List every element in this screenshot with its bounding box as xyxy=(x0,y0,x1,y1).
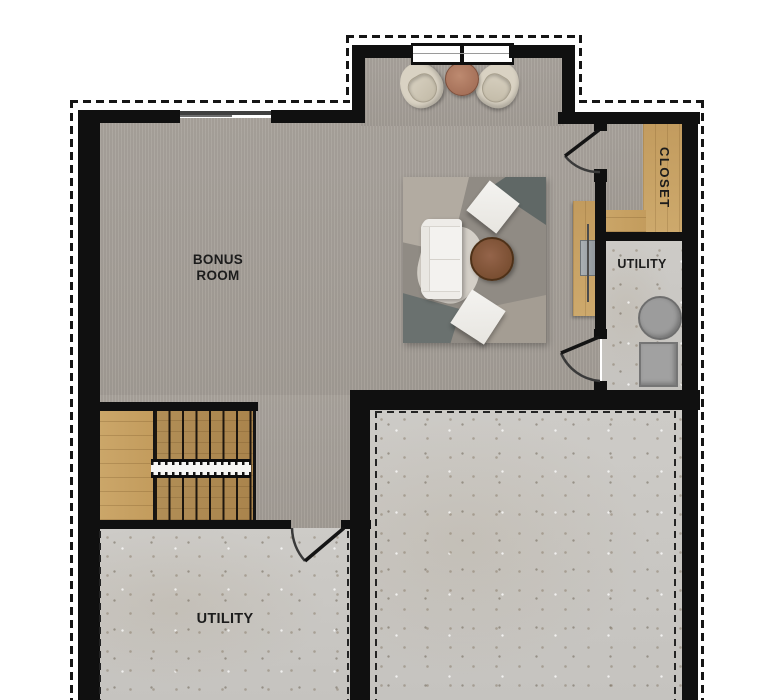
water-heater xyxy=(638,296,682,340)
bonus-room-label: BONUS ROOM xyxy=(160,252,276,284)
window-sill-line xyxy=(180,115,232,117)
closet-floor xyxy=(600,118,648,214)
wall-top-left-b xyxy=(271,110,354,123)
stair-railing xyxy=(151,459,251,478)
wall-mid-vertical xyxy=(350,390,370,700)
desk-accessory-line xyxy=(587,224,589,302)
double-window xyxy=(411,43,514,65)
sofa-cushion-seam xyxy=(430,259,460,260)
closet-door-post-top xyxy=(594,118,607,131)
sofa xyxy=(421,219,462,299)
unfinished-area-concrete-floor xyxy=(370,410,682,700)
exterior-outline-top-right xyxy=(579,100,704,103)
closet-door-post-bottom xyxy=(594,169,607,182)
closet-shelf-horizontal xyxy=(600,210,646,232)
exterior-outline-bump-left xyxy=(346,35,349,103)
exterior-outline-right xyxy=(701,100,704,700)
wall-top-left-a xyxy=(78,110,180,123)
slab-dashed-right xyxy=(674,411,676,700)
bonus-room-label-line1: BONUS xyxy=(193,252,243,267)
utility-door-post-top xyxy=(594,329,607,339)
bonus-room-label-line2: ROOM xyxy=(196,268,239,283)
sofa-back xyxy=(421,221,430,297)
utility-lower-dashed-right xyxy=(347,531,349,700)
closet-label: CLOSET xyxy=(646,125,672,230)
wall-bumpout-right xyxy=(562,45,575,115)
wall-top-right xyxy=(558,112,700,124)
exterior-outline-bump-right xyxy=(579,35,582,103)
furnace xyxy=(639,342,678,387)
slab-dashed-left xyxy=(375,411,377,700)
wall-utility-lower-top-b xyxy=(341,520,371,529)
utility-lower-label: UTILITY xyxy=(183,611,267,627)
wall-below-closet xyxy=(606,232,682,241)
slab-dashed-top xyxy=(375,411,676,413)
exterior-outline-left xyxy=(70,100,73,700)
wall-unfinished-top xyxy=(350,390,700,410)
exterior-outline-top-left xyxy=(70,100,350,103)
stair-landing xyxy=(100,410,153,520)
round-side-table xyxy=(445,62,479,96)
utility-lower-dashed-left xyxy=(99,531,101,700)
window-pane-line xyxy=(413,53,512,54)
wall-above-stairs xyxy=(100,402,258,411)
basement-floor-plan: BONUS ROOM CLOSET UTILITY UTILITY xyxy=(0,0,764,700)
sofa-arm xyxy=(423,291,460,299)
wall-closet-utility-left xyxy=(595,182,606,329)
wall-left-exterior xyxy=(78,110,100,700)
wall-bumpout-top-left xyxy=(352,45,413,58)
exterior-outline-bump-top xyxy=(346,35,582,38)
utility-right-label: UTILITY xyxy=(600,257,684,271)
sofa-arm xyxy=(423,219,460,227)
round-coffee-table xyxy=(470,237,514,281)
wall-utility-lower-top-a xyxy=(78,520,291,529)
